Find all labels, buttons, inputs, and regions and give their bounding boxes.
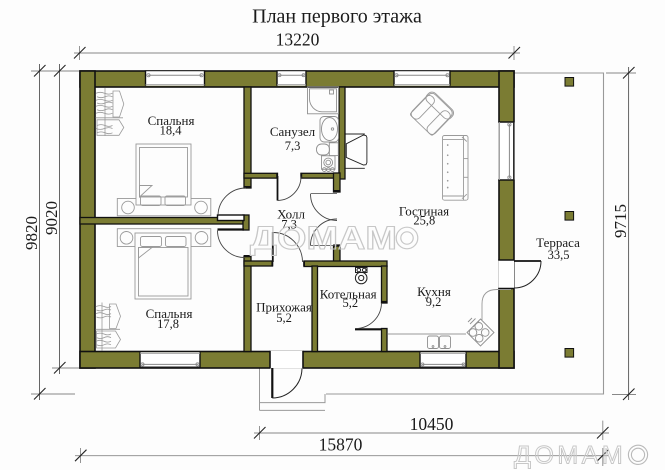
svg-text:9,2: 9,2 xyxy=(426,295,442,309)
svg-text:5,2: 5,2 xyxy=(342,296,358,310)
svg-text:17,8: 17,8 xyxy=(157,317,179,331)
svg-text:15870: 15870 xyxy=(319,435,363,455)
svg-text:ДОМАМ: ДОМАМ xyxy=(250,220,397,256)
svg-text:ДОМАМ: ДОМАМ xyxy=(514,442,626,470)
svg-text:9020: 9020 xyxy=(42,201,61,235)
svg-text:План первого этажа: План первого этажа xyxy=(252,6,422,28)
svg-text:7,3: 7,3 xyxy=(285,139,301,153)
svg-text:33,5: 33,5 xyxy=(548,248,570,262)
svg-text:13220: 13220 xyxy=(276,29,320,49)
svg-text:9820: 9820 xyxy=(22,216,41,250)
svg-text:9715: 9715 xyxy=(611,204,630,238)
svg-text:Санузел: Санузел xyxy=(270,124,316,139)
svg-text:5,2: 5,2 xyxy=(276,311,292,325)
svg-text:25,8: 25,8 xyxy=(413,214,435,228)
svg-text:18,4: 18,4 xyxy=(160,124,183,138)
svg-text:10450: 10450 xyxy=(410,414,454,434)
